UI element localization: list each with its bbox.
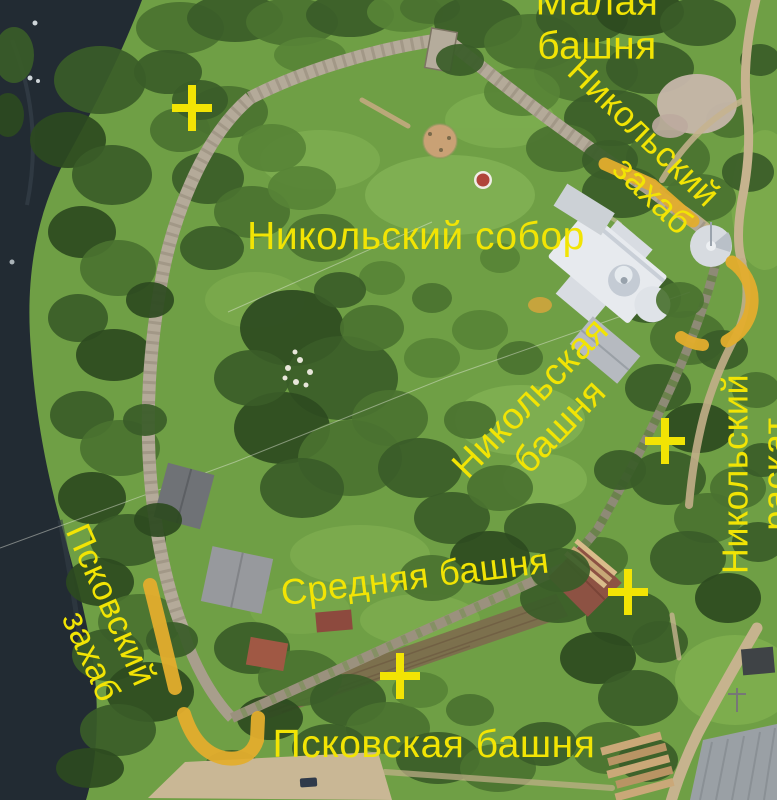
label-malaya-bashnya: Малая башня (507, 0, 687, 68)
flower-bed (528, 297, 552, 313)
label-nikolsky-sobor: Никольский собор (247, 215, 585, 259)
dark-shed (741, 647, 775, 676)
playground (423, 124, 457, 158)
annotated-aerial-map: Малая башняНикольский захабНикольский со… (0, 0, 777, 800)
house-red-2 (315, 609, 353, 632)
red-chapel (474, 171, 492, 189)
parked-car (300, 777, 318, 787)
label-nikolsky-raskat: Никольский раскат (716, 374, 777, 574)
label-pskovskaya-bashnya: Псковская башня (273, 723, 596, 767)
